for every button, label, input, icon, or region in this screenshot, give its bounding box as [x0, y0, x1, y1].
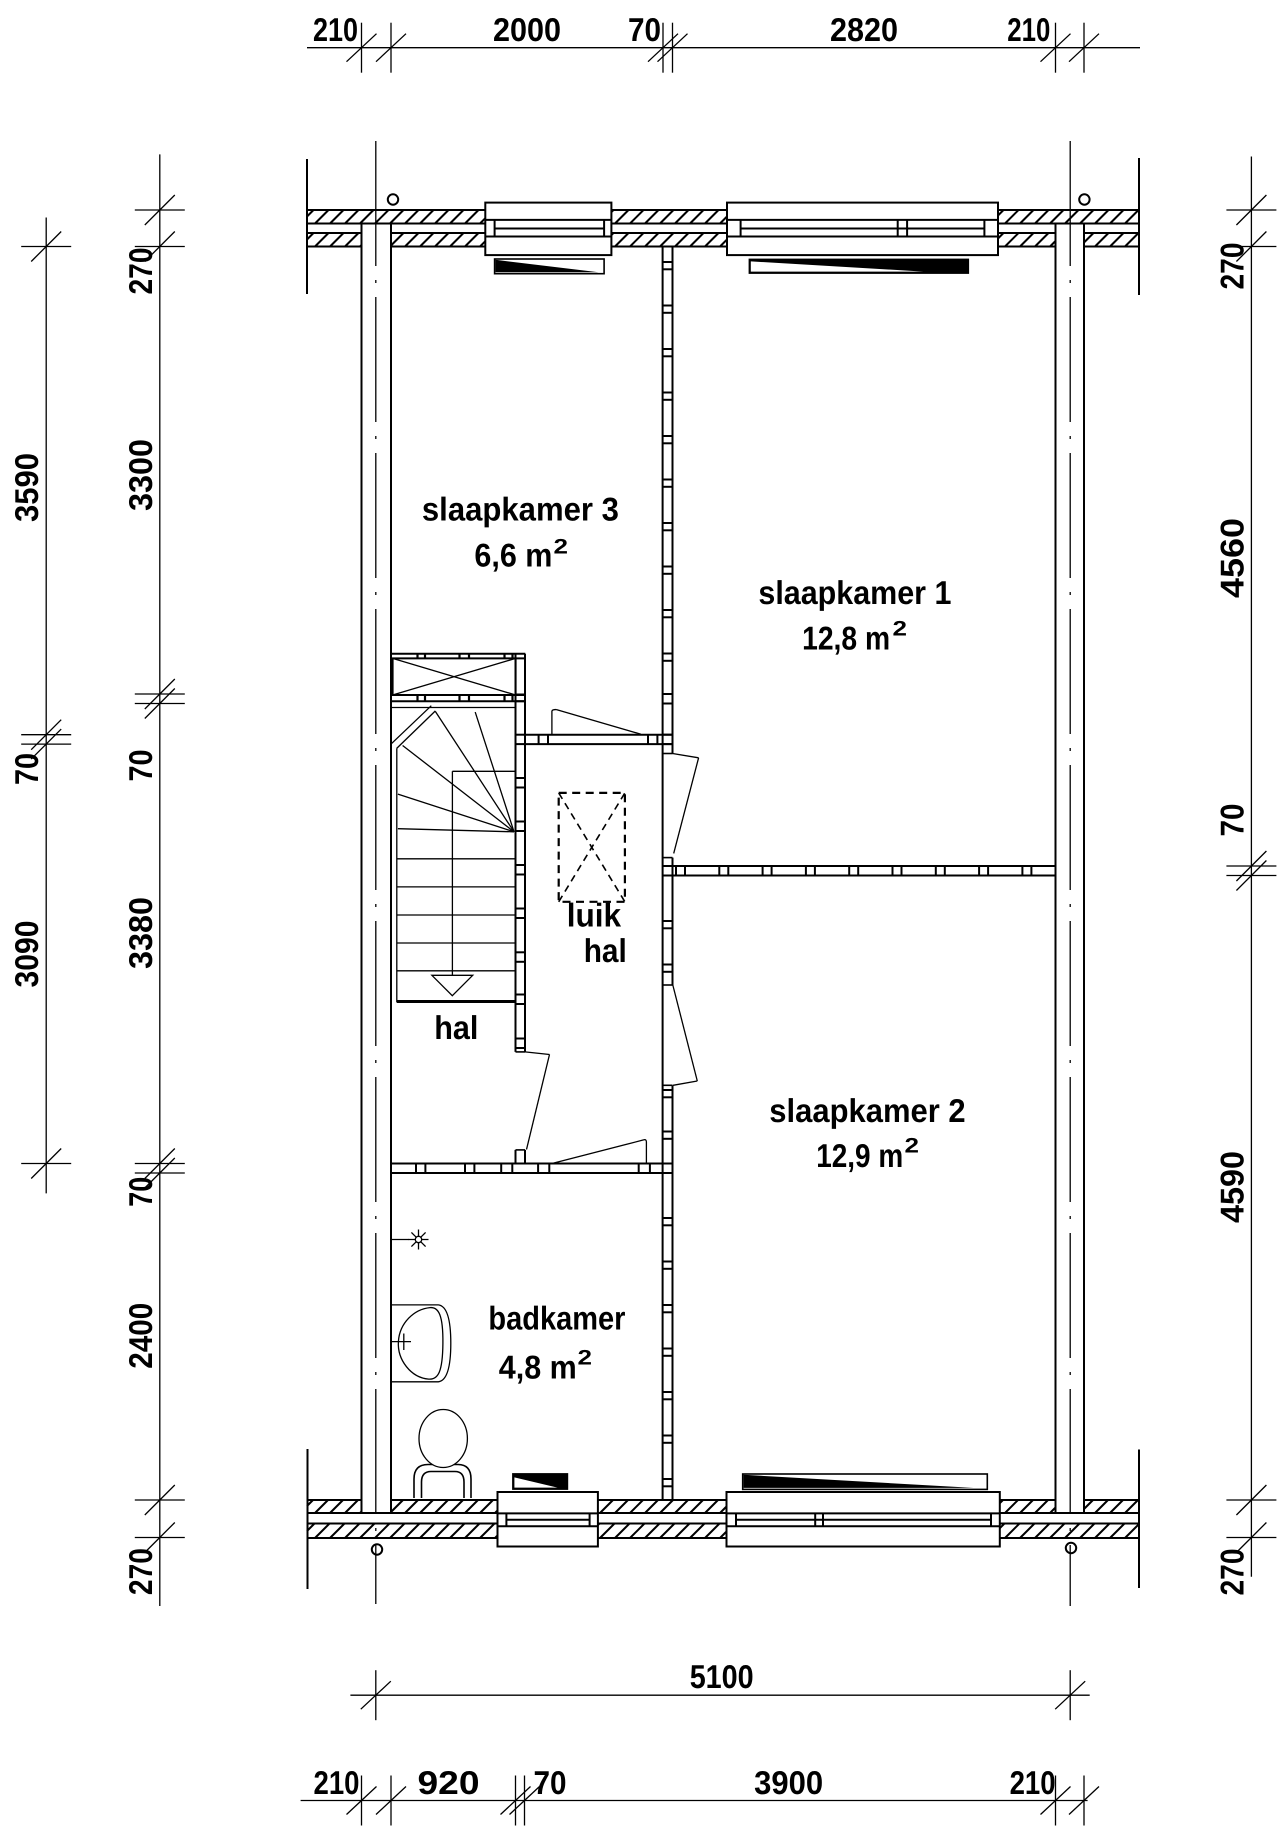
- svg-text:slaapkamer 2: slaapkamer 2: [769, 1092, 965, 1129]
- svg-text:270: 270: [122, 248, 159, 295]
- svg-text:slaapkamer 1: slaapkamer 1: [758, 574, 951, 611]
- svg-text:luik: luik: [567, 897, 622, 934]
- svg-text:2: 2: [905, 1135, 920, 1158]
- svg-text:70: 70: [8, 753, 45, 785]
- svg-text:4590: 4590: [1213, 1151, 1250, 1223]
- svg-text:12,8 m: 12,8 m: [802, 619, 890, 656]
- svg-text:2: 2: [554, 536, 569, 559]
- svg-text:2820: 2820: [830, 11, 898, 48]
- svg-text:3090: 3090: [8, 921, 45, 988]
- svg-text:210: 210: [313, 11, 358, 48]
- svg-text:270: 270: [122, 1548, 159, 1595]
- svg-text:70: 70: [1213, 804, 1250, 837]
- svg-text:3300: 3300: [122, 439, 159, 511]
- svg-text:3590: 3590: [8, 453, 45, 522]
- svg-text:210: 210: [1007, 11, 1050, 48]
- svg-text:270: 270: [1213, 243, 1250, 290]
- svg-text:badkamer: badkamer: [488, 1299, 625, 1336]
- svg-text:4560: 4560: [1213, 518, 1250, 598]
- svg-text:slaapkamer 3: slaapkamer 3: [422, 491, 619, 528]
- svg-text:hal: hal: [434, 1009, 478, 1046]
- svg-text:70: 70: [122, 750, 159, 782]
- svg-text:2: 2: [893, 618, 908, 641]
- svg-text:920: 920: [418, 1764, 480, 1801]
- svg-text:2: 2: [578, 1347, 593, 1370]
- svg-text:70: 70: [534, 1764, 567, 1801]
- svg-text:210: 210: [1010, 1764, 1056, 1801]
- svg-text:2000: 2000: [493, 11, 561, 48]
- svg-text:12,9 m: 12,9 m: [816, 1137, 903, 1174]
- svg-text:4,8 m: 4,8 m: [499, 1348, 577, 1385]
- svg-text:hal: hal: [584, 932, 627, 969]
- svg-text:270: 270: [1213, 1549, 1250, 1596]
- svg-text:6,6 m: 6,6 m: [474, 536, 552, 573]
- svg-text:3380: 3380: [122, 897, 159, 969]
- svg-text:5100: 5100: [690, 1658, 754, 1695]
- svg-text:2400: 2400: [122, 1303, 159, 1369]
- svg-text:70: 70: [628, 11, 661, 48]
- svg-text:3900: 3900: [754, 1764, 823, 1801]
- svg-text:210: 210: [314, 1764, 360, 1801]
- svg-text:70: 70: [122, 1177, 159, 1207]
